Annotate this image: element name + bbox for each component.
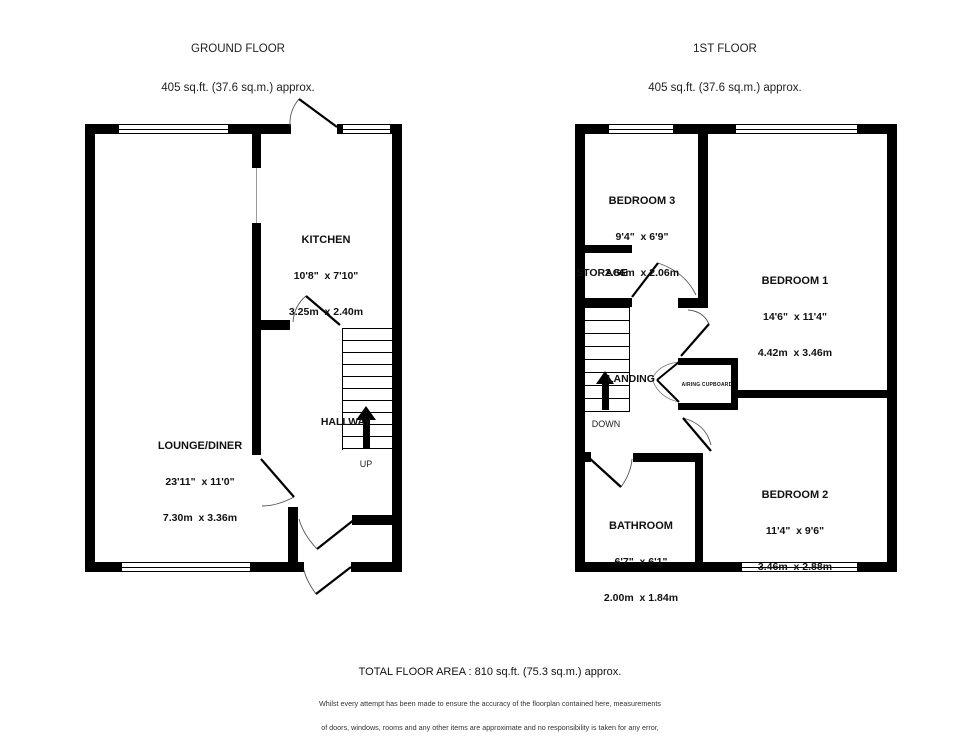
stairs-up-label: UP [360,459,373,469]
door-arc [299,519,317,549]
room-label-landing: LANDING [607,373,655,385]
room-label-bathroom: BATHROOM 6'7" x 6'1" 2.00m x 1.84m [604,496,678,628]
door-leaf [317,519,355,549]
room-label-bedroom-2: BEDROOM 2 11'4" x 9'6" 3.46m x 2.88m [758,465,832,597]
room-name: BEDROOM 2 [758,489,832,501]
floorplan-image: GROUND FLOOR 405 sq.ft. (37.6 sq.m.) app… [0,0,980,736]
door-arc [304,570,316,594]
room-name: LOUNGE/DINER [158,440,242,452]
disclaimer-line: Whilst every attempt has been made to en… [317,700,663,708]
room-size-metric: 2.00m x 1.84m [604,592,678,604]
room-label-storage: STORAGE [576,267,628,279]
room-size-imperial: 10'8" x 7'10" [289,270,363,282]
room-name: BATHROOM [604,520,678,532]
door-arc [688,310,709,324]
room-size-metric: 4.42m x 3.46m [758,347,832,359]
disclaimer-line: of doors, windows, rooms and any other i… [317,724,663,732]
door-leaf [681,324,709,356]
door-leaf [587,456,621,487]
room-name: BEDROOM 3 [605,195,679,207]
room-size-metric: 3.25m x 2.40m [289,306,363,318]
room-size-imperial: 23'11" x 11'0" [158,476,242,488]
room-size-imperial: 11'4" x 9'6" [758,525,832,537]
room-size-metric: 3.46m x 2.88m [758,561,832,573]
total-floor-area: TOTAL FLOOR AREA : 810 sq.ft. (75.3 sq.m… [359,666,622,678]
door-leaf [657,380,679,402]
room-label-hallway: HALLWAY [321,416,371,428]
room-name: BEDROOM 1 [758,275,832,287]
door-swings-layer [0,0,980,736]
disclaimer-text: Whilst every attempt has been made to en… [317,684,663,736]
room-label-lounge-diner: LOUNGE/DINER 23'11" x 11'0" 7.30m x 3.36… [158,416,242,548]
door-leaf [261,459,294,497]
room-label-bedroom-3: BEDROOM 3 9'4" x 6'9" 2.86m x 2.06m [605,171,679,303]
room-size-imperial: 6'7" x 6'1" [604,556,678,568]
door-leaf [299,99,337,127]
room-label-airing-cupboard: AIRING CUPBOARD [682,382,733,388]
room-size-imperial: 14'6" x 11'4" [758,311,832,323]
door-arc [262,497,294,506]
stairs-down-label: DOWN [592,419,621,429]
room-size-imperial: 9'4" x 6'9" [605,231,679,243]
room-label-kitchen: KITCHEN 10'8" x 7'10" 3.25m x 2.40m [289,210,363,342]
room-label-bedroom-1: BEDROOM 1 14'6" x 11'4" 4.42m x 3.46m [758,251,832,383]
room-size-metric: 7.30m x 3.36m [158,512,242,524]
door-arc [290,99,299,126]
room-name: KITCHEN [289,234,363,246]
door-arc [621,459,632,487]
door-leaf [316,567,351,594]
